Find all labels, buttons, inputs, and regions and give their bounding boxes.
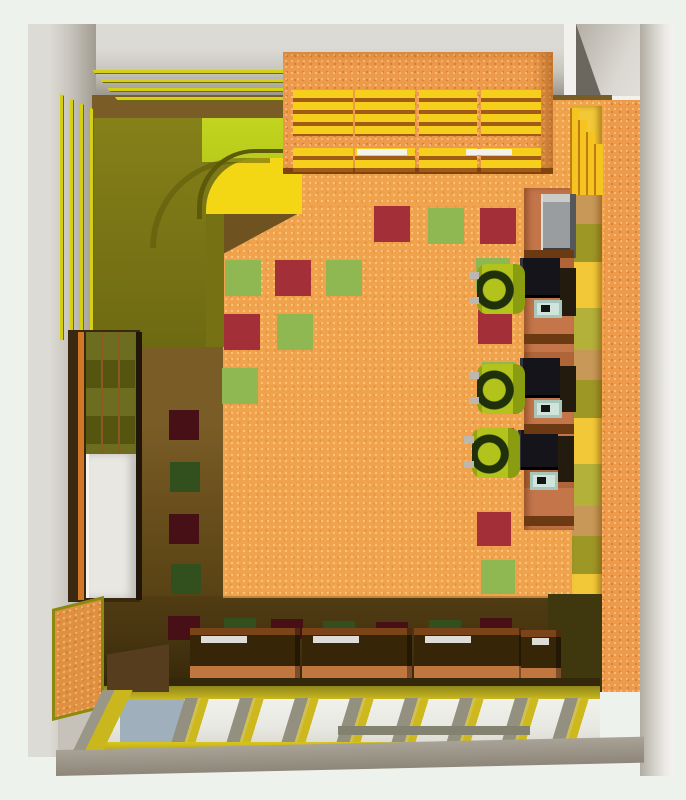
shelf-white-bar <box>466 149 512 155</box>
pc-tower <box>560 268 576 316</box>
floor-tile-red <box>374 206 410 242</box>
wall-stripes-left <box>60 94 98 340</box>
shelf-column <box>481 90 541 136</box>
monitor <box>520 358 560 398</box>
floor-tile-green-shadow <box>171 564 201 594</box>
desk-divider <box>524 516 574 526</box>
floor-tile-red-shadow <box>169 410 199 440</box>
floor-tile-red-shadow <box>169 514 199 544</box>
shelf-column <box>419 90 477 136</box>
shelf-column <box>293 148 353 172</box>
wall-step <box>594 144 603 195</box>
floor-tile-red <box>480 208 516 244</box>
monitor <box>518 430 558 470</box>
shelf-column <box>355 90 415 136</box>
floor-tile-green <box>428 208 464 244</box>
pc-tower <box>558 436 574 482</box>
floor-tile-red <box>224 314 260 350</box>
floor-tile-green <box>481 560 515 594</box>
floor-tile-green <box>222 368 258 404</box>
niche-divider-vertical <box>564 24 576 102</box>
classroom-render <box>0 0 686 800</box>
tv-display <box>541 194 576 258</box>
wall-right <box>640 24 674 776</box>
keyboard <box>534 300 562 318</box>
cabinet-trim <box>78 332 84 600</box>
wall-stripes-top <box>86 70 290 104</box>
wall-orange-panel <box>600 100 640 692</box>
cabinet-white-panel <box>86 454 136 598</box>
floor-tile-green <box>225 260 261 296</box>
floor-tile-green <box>326 260 362 296</box>
floor-sunlit-strip <box>283 174 553 208</box>
floor-tile-red <box>477 512 511 546</box>
office-chair <box>477 364 525 414</box>
pc-tower <box>560 366 576 412</box>
cabinet-shelf-grid <box>86 332 136 454</box>
shelf-column <box>293 90 353 136</box>
floor-tile-green-shadow <box>170 462 200 492</box>
cabinet-edge <box>136 332 142 600</box>
office-chair <box>477 264 525 314</box>
monitor <box>520 258 560 298</box>
floor-tile-green <box>277 314 313 350</box>
desk-divider <box>524 250 574 258</box>
desk-divider <box>524 334 574 344</box>
floor-tile-red <box>478 310 512 344</box>
keyboard <box>534 400 562 418</box>
office-chair <box>472 428 520 478</box>
shelf-white-bar <box>357 149 407 155</box>
desk-divider <box>524 424 574 434</box>
keyboard <box>530 472 558 490</box>
sill-bar <box>338 726 530 735</box>
floor-tile-red <box>275 260 311 296</box>
